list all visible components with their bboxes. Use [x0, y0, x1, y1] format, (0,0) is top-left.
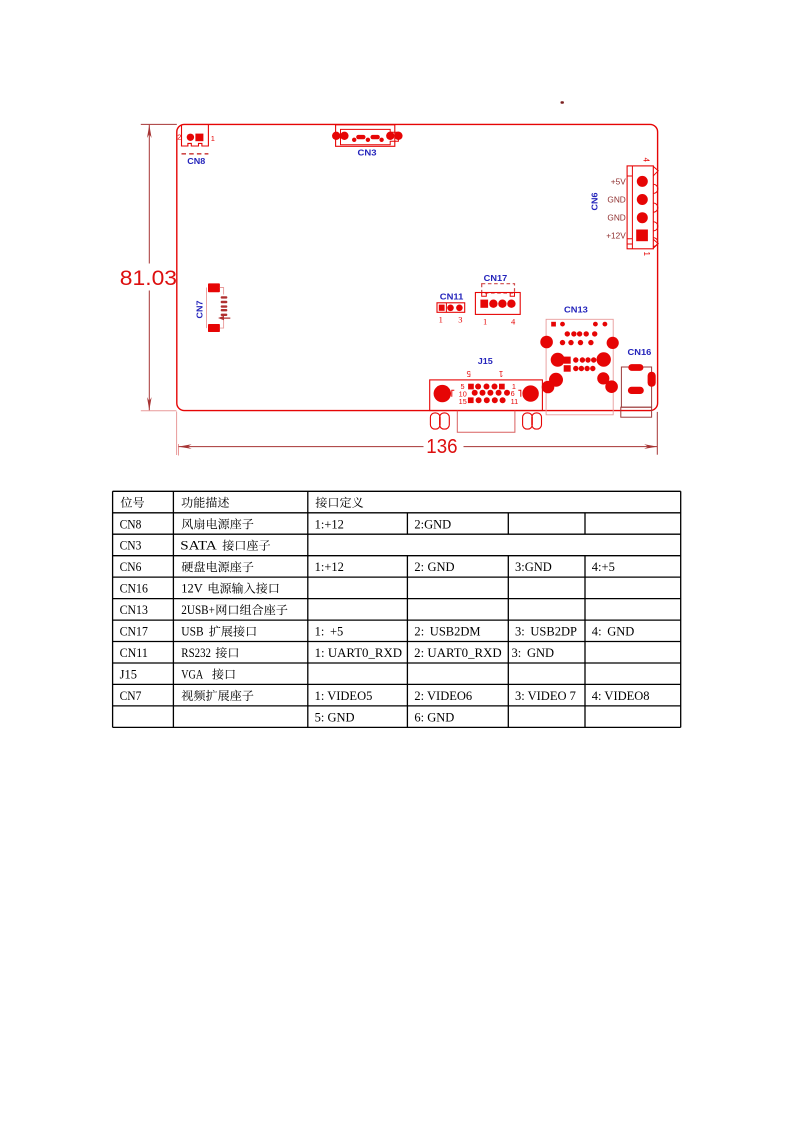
- svg-text:+5V: +5V: [611, 176, 626, 186]
- svg-text:3:: 3:: [512, 646, 522, 660]
- svg-text:3: VIDEO 7: 3: VIDEO 7: [515, 689, 576, 703]
- svg-text:1:+12: 1:+12: [315, 517, 344, 531]
- svg-text:USB2DP: USB2DP: [530, 625, 577, 639]
- svg-text:1:+12: 1:+12: [315, 560, 344, 574]
- svg-text:CN7: CN7: [195, 300, 204, 318]
- svg-text:CN7: CN7: [120, 689, 142, 703]
- svg-text:4: 4: [642, 158, 651, 163]
- svg-text:CN13: CN13: [564, 306, 588, 315]
- svg-text:2:: 2:: [414, 560, 424, 574]
- svg-text::: :: [598, 625, 601, 639]
- svg-text:CN8: CN8: [120, 517, 142, 531]
- svg-text:2: VIDEO6: 2: VIDEO6: [414, 689, 472, 703]
- svg-text::: :: [321, 625, 324, 639]
- svg-text:CN17: CN17: [120, 625, 148, 639]
- svg-text:2:GND: 2:GND: [414, 517, 451, 531]
- svg-text:1: 1: [499, 369, 503, 378]
- svg-text:11: 11: [511, 397, 519, 406]
- svg-text:CN16: CN16: [120, 582, 148, 596]
- svg-text:6: GND: 6: GND: [414, 710, 454, 724]
- svg-text:CN11: CN11: [440, 292, 464, 301]
- svg-text:CN6: CN6: [591, 192, 600, 210]
- svg-text:2: 2: [177, 132, 181, 141]
- svg-text:12V: 12V: [181, 582, 202, 596]
- svg-text:GND: GND: [607, 625, 634, 639]
- svg-text:4:+5: 4:+5: [592, 560, 615, 574]
- svg-text:1: 1: [439, 314, 443, 324]
- svg-text:15: 15: [459, 397, 467, 406]
- svg-text:J15: J15: [120, 668, 137, 682]
- svg-text:GND: GND: [527, 646, 554, 660]
- svg-text:GND: GND: [607, 213, 625, 223]
- svg-text:1: VIDEO5: 1: VIDEO5: [315, 689, 373, 703]
- svg-text:CN3: CN3: [358, 149, 378, 158]
- svg-text::: :: [421, 625, 424, 639]
- svg-text:1: 1: [211, 134, 215, 143]
- svg-text:VGA: VGA: [181, 668, 203, 682]
- svg-text:+12V: +12V: [606, 231, 626, 241]
- svg-text:J15: J15: [478, 357, 493, 366]
- svg-text::: :: [521, 625, 524, 639]
- svg-text:GND: GND: [607, 194, 625, 204]
- svg-text:5: GND: 5: GND: [315, 710, 355, 724]
- svg-text:USB2DM: USB2DM: [430, 625, 481, 639]
- svg-text:CN6: CN6: [120, 560, 142, 574]
- svg-text:1: UART0_RXD: 1: UART0_RXD: [315, 646, 403, 660]
- svg-text:RS232: RS232: [181, 646, 211, 660]
- svg-text:CN8: CN8: [187, 157, 205, 166]
- svg-text:CN3: CN3: [120, 539, 142, 553]
- svg-text:2: UART0_RXD: 2: UART0_RXD: [414, 646, 502, 660]
- svg-text:CN16: CN16: [628, 348, 652, 357]
- svg-text:2USB+: 2USB+: [181, 603, 215, 617]
- svg-text:1: 1: [483, 317, 487, 327]
- svg-text:CN17: CN17: [484, 274, 508, 283]
- svg-text:81.03: 81.03: [120, 267, 177, 290]
- svg-text:3: 3: [458, 314, 462, 324]
- svg-text:+5: +5: [330, 625, 343, 639]
- svg-text:SATA: SATA: [180, 539, 217, 553]
- svg-text:USB: USB: [181, 625, 203, 639]
- svg-text:4: VIDEO8: 4: VIDEO8: [592, 689, 650, 703]
- svg-text:1: 1: [642, 252, 651, 257]
- svg-text:3:GND: 3:GND: [515, 560, 552, 574]
- svg-text:CN13: CN13: [120, 603, 148, 617]
- svg-text:GND: GND: [428, 560, 455, 574]
- svg-text:136: 136: [426, 436, 457, 458]
- svg-text:CN11: CN11: [120, 646, 148, 660]
- svg-text:5: 5: [466, 369, 471, 378]
